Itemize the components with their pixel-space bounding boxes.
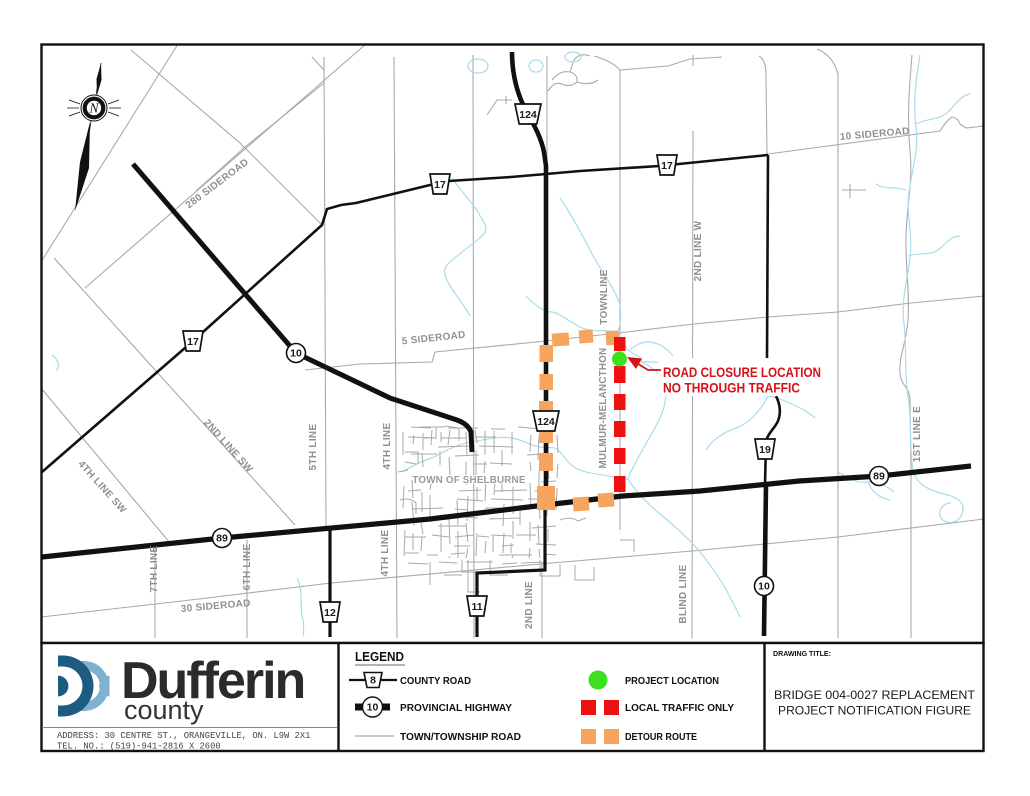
- svg-text:12: 12: [324, 607, 336, 619]
- svg-text:TOWNLINE: TOWNLINE: [599, 269, 610, 325]
- svg-text:PROJECT NOTIFICATION FIGURE: PROJECT NOTIFICATION FIGURE: [778, 704, 971, 718]
- svg-text:6TH LINE: 6TH LINE: [242, 544, 253, 591]
- svg-text:BRIDGE 004-0027 REPLACEMENT: BRIDGE 004-0027 REPLACEMENT: [774, 688, 975, 702]
- svg-text:5TH LINE: 5TH LINE: [308, 424, 319, 471]
- svg-text:PROJECT LOCATION: PROJECT LOCATION: [625, 676, 719, 687]
- svg-text:17: 17: [661, 160, 673, 172]
- svg-text:TOWN/TOWNSHIP ROAD: TOWN/TOWNSHIP ROAD: [400, 732, 521, 743]
- svg-text:8: 8: [370, 674, 376, 686]
- svg-text:DETOUR ROUTE: DETOUR ROUTE: [625, 732, 697, 743]
- svg-text:124: 124: [537, 416, 555, 428]
- svg-text:17: 17: [187, 336, 199, 348]
- svg-text:PROVINCIAL HIGHWAY: PROVINCIAL HIGHWAY: [400, 703, 512, 714]
- svg-text:10: 10: [758, 581, 770, 593]
- svg-text:89: 89: [873, 471, 885, 483]
- svg-text:NO THROUGH TRAFFIC: NO THROUGH TRAFFIC: [663, 381, 800, 397]
- svg-text:4TH LINE: 4TH LINE: [382, 423, 393, 470]
- svg-text:county: county: [124, 695, 204, 725]
- svg-text:11: 11: [471, 601, 482, 613]
- svg-text:LOCAL TRAFFIC ONLY: LOCAL TRAFFIC ONLY: [625, 703, 734, 714]
- svg-text:1ST LINE E: 1ST LINE E: [912, 406, 923, 462]
- svg-text:TEL. NO.: (519)-941-2816 X 260: TEL. NO.: (519)-941-2816 X 2600: [57, 742, 221, 752]
- svg-text:N: N: [88, 101, 99, 116]
- svg-text:4TH LINE: 4TH LINE: [380, 530, 391, 577]
- svg-text:ADDRESS: 30 CENTRE ST., ORANGE: ADDRESS: 30 CENTRE ST., ORANGEVILLE, ON.…: [57, 731, 310, 741]
- svg-text:124: 124: [519, 109, 537, 121]
- svg-text:89: 89: [216, 533, 228, 545]
- svg-text:7TH LINE: 7TH LINE: [149, 546, 160, 593]
- svg-text:LEGEND: LEGEND: [355, 650, 404, 664]
- svg-text:17: 17: [434, 179, 446, 191]
- svg-text:BLIND LINE: BLIND LINE: [678, 564, 689, 623]
- svg-text:ROAD CLOSURE LOCATION: ROAD CLOSURE LOCATION: [663, 365, 821, 381]
- svg-text:DRAWING TITLE:: DRAWING TITLE:: [773, 649, 831, 658]
- svg-text:COUNTY ROAD: COUNTY ROAD: [400, 676, 471, 687]
- svg-text:2ND LINE: 2ND LINE: [524, 581, 535, 629]
- svg-text:TOWN OF SHELBURNE: TOWN OF SHELBURNE: [412, 475, 525, 486]
- svg-text:10: 10: [290, 348, 302, 360]
- svg-text:2ND LINE W: 2ND LINE W: [693, 220, 704, 281]
- svg-text:19: 19: [759, 444, 771, 456]
- svg-text:10: 10: [367, 702, 379, 714]
- svg-text:MULMUR-MELANCTHON: MULMUR-MELANCTHON: [598, 348, 609, 469]
